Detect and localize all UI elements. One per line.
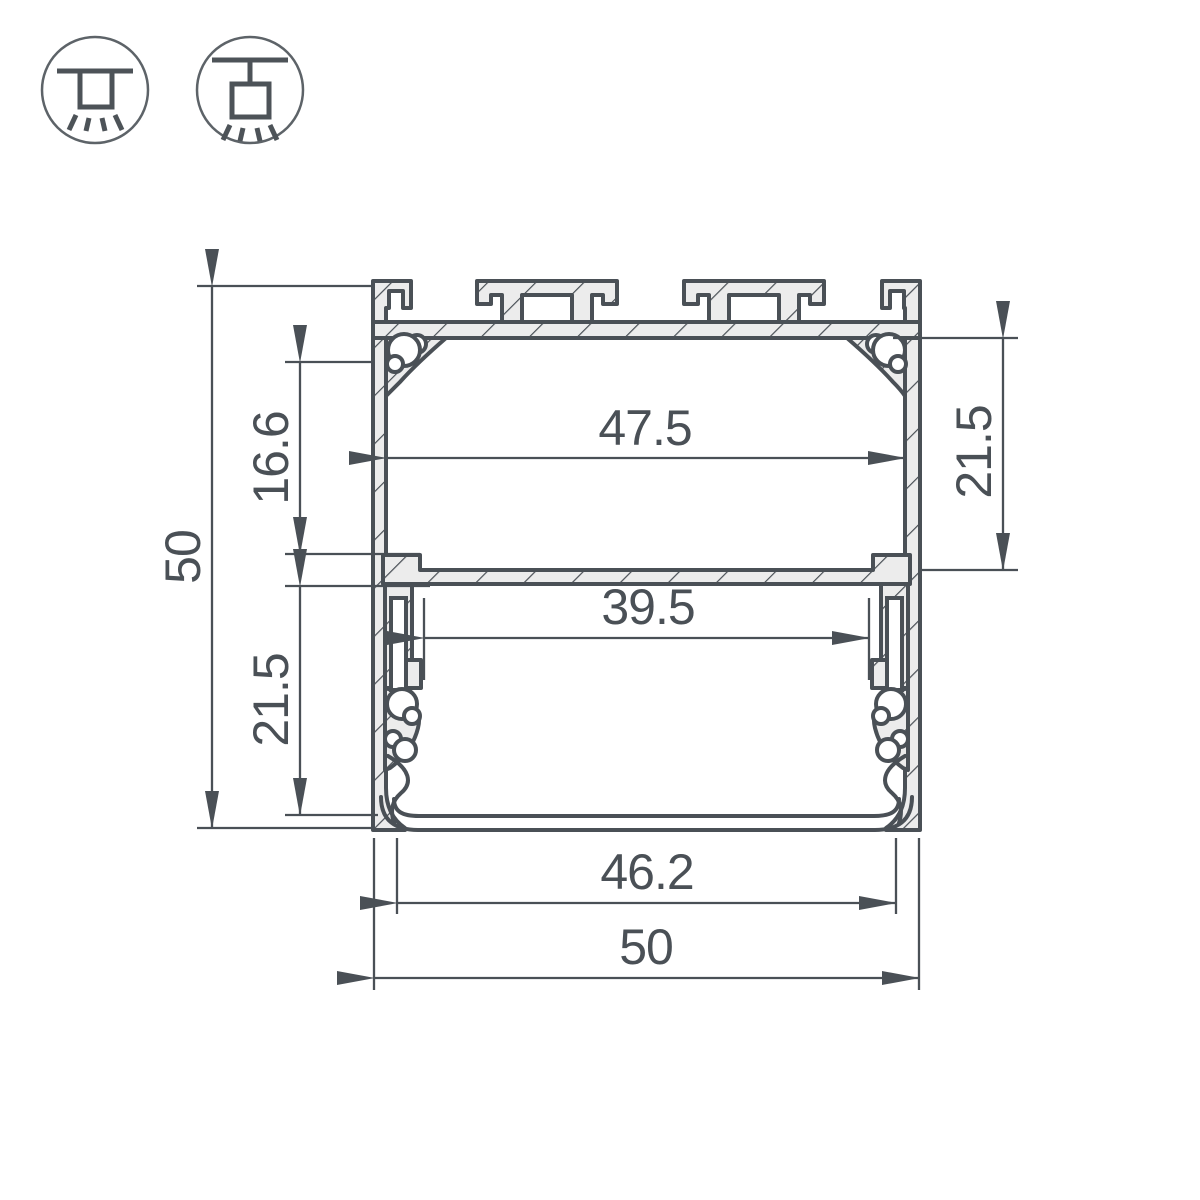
top-wall <box>373 322 920 338</box>
right-clip-foot <box>872 660 887 688</box>
label-inner-shelf-width: 39.5 <box>601 579 694 635</box>
label-lower-cavity-height: 21.5 <box>243 653 299 746</box>
label-right-cavity-height: 21.5 <box>946 405 1002 498</box>
recessed-ceiling-mount-icon <box>42 37 148 143</box>
top-slot-block-2 <box>684 281 824 322</box>
right-clip-slot <box>887 598 902 690</box>
label-overall-width: 50 <box>619 919 673 975</box>
bottom-tray <box>381 756 912 830</box>
top-slot-block-1 <box>477 281 617 322</box>
drawing-canvas: 50 16.6 21.5 47.5 21.5 39.5 46.2 50 <box>0 0 1200 1200</box>
left-clip-foot <box>406 660 421 688</box>
left-clip-slot <box>391 598 406 690</box>
label-upper-cavity-width: 47.5 <box>598 400 691 456</box>
profile-drawing-svg: 50 16.6 21.5 47.5 21.5 39.5 46.2 50 <box>0 0 1200 1200</box>
surface-pendant-mount-icon <box>197 37 303 143</box>
label-overall-height: 50 <box>155 530 211 584</box>
tray-inner-line <box>394 799 899 816</box>
profile-voids <box>385 334 908 761</box>
label-upper-cavity-height: 16.6 <box>243 411 299 504</box>
profile-body <box>373 281 920 830</box>
tray-outer-line <box>381 797 912 830</box>
label-bottom-opening-width: 46.2 <box>600 844 693 900</box>
